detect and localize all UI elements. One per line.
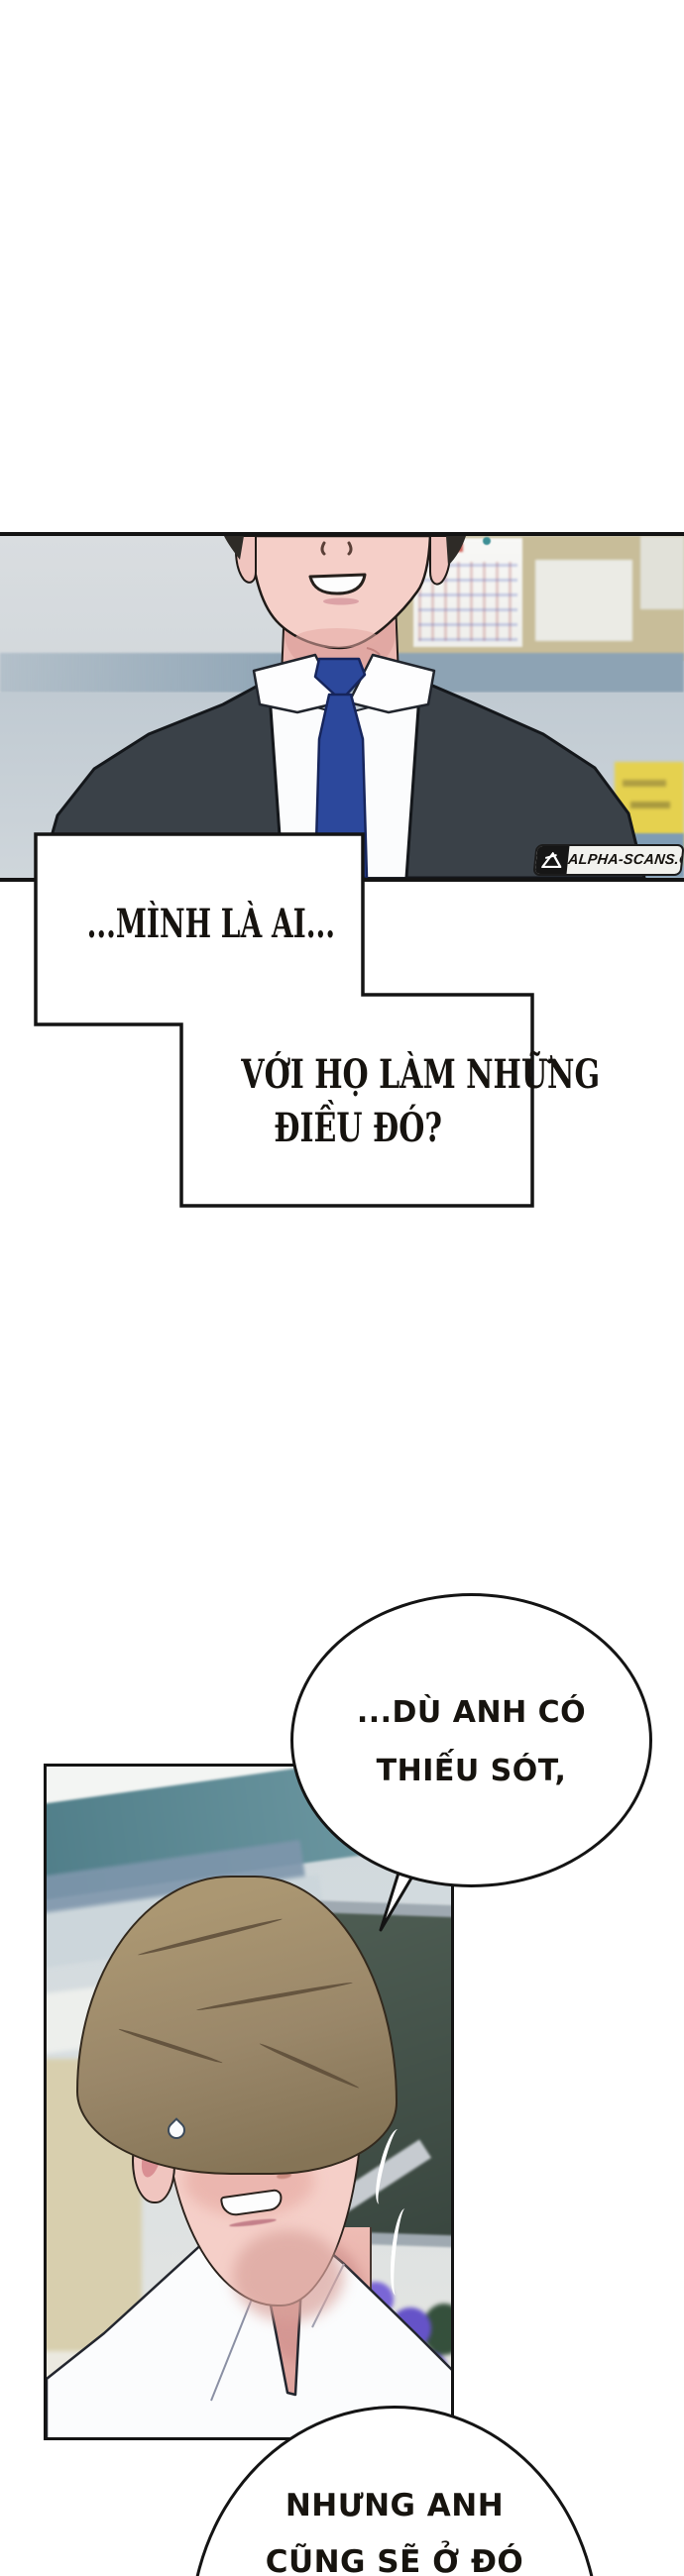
- caption-box-1: ...MÌNH LÀ AI...: [34, 897, 363, 952]
- comic-page: ALPHA-SCANS.ORG ...MÌNH LÀ AI... VỚI HỌ …: [0, 0, 684, 2576]
- scanlation-watermark: ALPHA-SCANS.ORG: [532, 844, 684, 876]
- caption-text-2b: ĐIỀU ĐÓ?: [274, 1102, 442, 1155]
- chin-shading: [233, 2230, 344, 2321]
- caption-text-2a: VỚI HỌ LÀM NHỮNG: [241, 1048, 600, 1102]
- bubble1-line1: ...DÙ ANH CÓ: [293, 1683, 649, 1742]
- caption-box-2: VỚI HỌ LÀM NHỮNG ĐIỀU ĐÓ?: [181, 1048, 534, 1155]
- caption-text-1: ...MÌNH LÀ AI...: [87, 897, 335, 952]
- bubble2-line1: NHƯNG ANH: [192, 2478, 597, 2534]
- suit-man-figure: [0, 536, 684, 878]
- panel-suit-closeup: [0, 532, 684, 882]
- bubble1-line2: THIẾU SÓT,: [293, 1742, 649, 1800]
- alpha-triangle-logo-icon: [535, 846, 570, 874]
- watermark-text: ALPHA-SCANS.ORG: [567, 846, 684, 874]
- bubble2-line2: CŨNG SẼ Ở ĐÓ: [192, 2534, 597, 2576]
- speech-bubble-1: ...DÙ ANH CÓ THIẾU SÓT,: [290, 1593, 652, 1887]
